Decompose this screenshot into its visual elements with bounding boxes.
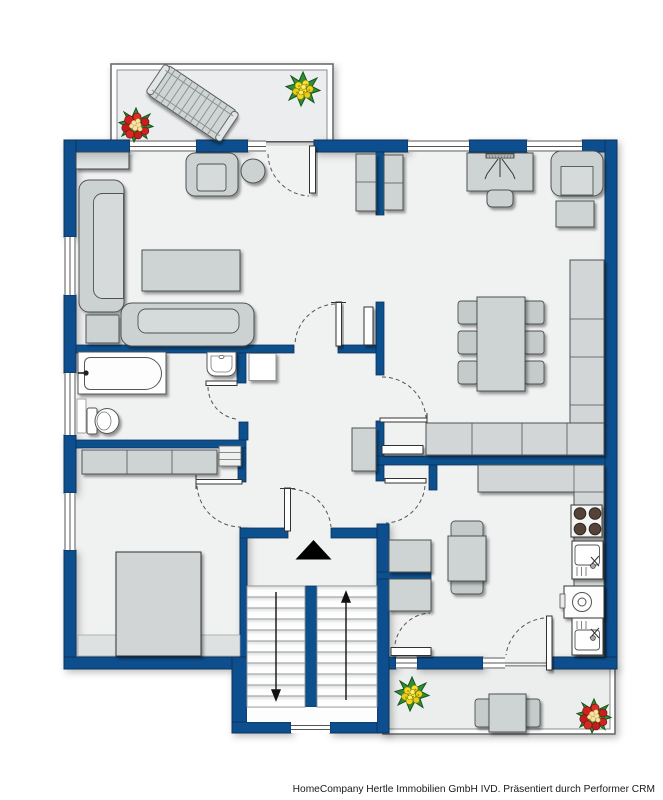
svg-text:HomeCompany Hertle Immobilien: HomeCompany Hertle Immobilien GmbH IVD. … [293,784,655,795]
